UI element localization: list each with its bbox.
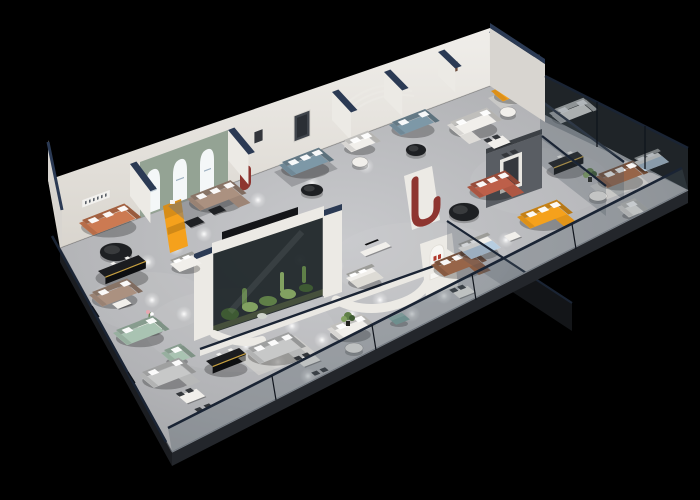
spotlight-pool: [176, 306, 192, 322]
black-round-table-3: [406, 144, 426, 159]
spotlight-pool: [314, 332, 330, 348]
showroom-floorplan-render: [0, 0, 700, 500]
spotlight-pool: [250, 192, 266, 208]
terrarium-right-pillar: [324, 210, 342, 298]
black-round-table-2: [301, 184, 323, 199]
spotlight-pool: [144, 292, 160, 308]
reception-side-table: [500, 107, 516, 120]
black-oval-coffee-table: [449, 203, 479, 223]
booth-table: [352, 157, 368, 170]
recessed-wall-panel: [294, 110, 310, 142]
showroom-render-stage: [0, 0, 700, 500]
spotlight-pool: [196, 226, 212, 242]
